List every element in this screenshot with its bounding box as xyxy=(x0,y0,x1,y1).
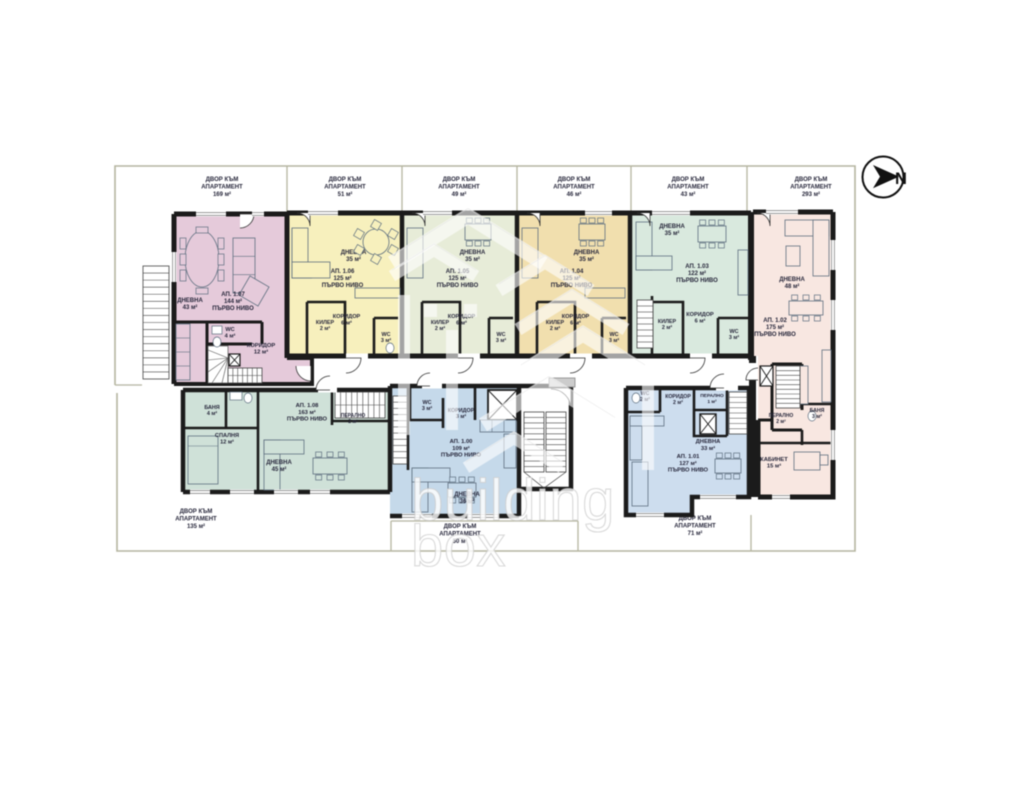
svg-text:12 м²: 12 м² xyxy=(220,438,234,445)
svg-text:КИЛЕР: КИЛЕР xyxy=(431,320,450,326)
svg-text:ДНЕВНА: ДНЕВНА xyxy=(460,250,486,256)
svg-text:АП. 1.07: АП. 1.07 xyxy=(221,292,245,298)
svg-text:33 м²: 33 м² xyxy=(701,445,715,452)
svg-text:2 м²: 2 м² xyxy=(662,325,672,331)
svg-text:ДВОР КЪМ: ДВОР КЪМ xyxy=(180,509,213,515)
svg-text:6 м²: 6 м² xyxy=(341,319,352,326)
svg-text:4 м²: 4 м² xyxy=(207,411,217,417)
svg-text:АПАРТАМЕНТ: АПАРТАМЕНТ xyxy=(790,185,832,191)
svg-text:2 м²: 2 м² xyxy=(320,326,330,332)
svg-text:15 м²: 15 м² xyxy=(767,463,781,470)
svg-text:ДНЕВНА: ДНЕВНА xyxy=(696,439,722,445)
svg-text:ДВОР КЪМ: ДВОР КЪМ xyxy=(329,177,362,183)
svg-text:43 м²: 43 м² xyxy=(183,304,198,311)
svg-text:ДНЕВНА: ДНЕВНА xyxy=(574,250,600,256)
svg-text:1 м²: 1 м² xyxy=(707,399,717,405)
svg-text:N: N xyxy=(895,170,907,188)
svg-text:ПЪРВО НИВО: ПЪРВО НИВО xyxy=(754,332,796,338)
svg-text:АП. 1.01: АП. 1.01 xyxy=(677,454,701,460)
svg-text:3 м²: 3 м² xyxy=(422,406,432,412)
svg-text:4 м²: 4 м² xyxy=(225,332,236,339)
svg-text:169 м²: 169 м² xyxy=(213,191,231,198)
svg-text:46 м²: 46 м² xyxy=(567,191,582,198)
svg-text:3 м²: 3 м² xyxy=(729,335,739,341)
svg-text:35 м²: 35 м² xyxy=(579,256,594,263)
svg-text:293 м²: 293 м² xyxy=(802,191,820,198)
svg-text:box: box xyxy=(411,514,506,579)
svg-text:КОРИДОР: КОРИДОР xyxy=(333,314,361,320)
svg-text:ПЪРВО НИВО: ПЪРВО НИВО xyxy=(287,417,328,423)
svg-text:2 м²: 2 м² xyxy=(348,419,358,425)
svg-text:ДНЕВНА: ДНЕВНА xyxy=(177,298,203,304)
svg-text:12 м²: 12 м² xyxy=(254,349,268,356)
svg-text:144 м²: 144 м² xyxy=(224,298,242,305)
svg-text:АП. 1.02: АП. 1.02 xyxy=(763,318,787,324)
svg-text:БАНЯ: БАНЯ xyxy=(204,405,219,411)
svg-text:6 м²: 6 м² xyxy=(570,319,581,326)
svg-text:ДВОР КЪМ: ДВОР КЪМ xyxy=(206,177,239,183)
svg-text:АПАРТАМЕНТ: АПАРТАМЕНТ xyxy=(553,185,595,191)
svg-text:109 м²: 109 м² xyxy=(452,445,470,452)
svg-text:127 м²: 127 м² xyxy=(679,460,697,467)
svg-text:АПАРТАМЕНТ: АПАРТАМЕНТ xyxy=(324,185,366,191)
svg-text:КОРИДОР: КОРИДОР xyxy=(686,312,714,318)
svg-text:122 м²: 122 м² xyxy=(688,270,706,277)
svg-text:163 м²: 163 м² xyxy=(298,409,316,416)
svg-text:ДНЕВНА: ДНЕВНА xyxy=(266,460,292,466)
svg-text:WC: WC xyxy=(225,327,234,333)
svg-text:WC: WC xyxy=(730,329,739,335)
svg-text:2 м²: 2 м² xyxy=(550,326,560,332)
svg-text:48 м²: 48 м² xyxy=(785,283,800,290)
svg-text:КИЛЕР: КИЛЕР xyxy=(658,319,677,325)
svg-text:СПАЛНЯ: СПАЛНЯ xyxy=(215,433,239,439)
svg-text:35 м²: 35 м² xyxy=(346,256,361,263)
svg-text:ПЪРВО НИВО: ПЪРВО НИВО xyxy=(212,306,254,312)
svg-text:175 м²: 175 м² xyxy=(766,324,784,331)
svg-text:АПАРТАМЕНТ: АПАРТАМЕНТ xyxy=(438,185,480,191)
svg-text:КИЛЕР: КИЛЕР xyxy=(546,320,565,326)
svg-text:6 м²: 6 м² xyxy=(456,319,467,326)
svg-text:49 м²: 49 м² xyxy=(452,191,467,198)
svg-text:2 м²: 2 м² xyxy=(435,326,445,332)
svg-text:35 м²: 35 м² xyxy=(465,256,480,263)
svg-text:ДВОР КЪМ: ДВОР КЪМ xyxy=(672,177,705,183)
svg-text:2 м²: 2 м² xyxy=(673,400,683,406)
svg-text:51 м²: 51 м² xyxy=(338,191,353,198)
svg-text:135 м²: 135 м² xyxy=(187,523,205,530)
svg-text:WC: WC xyxy=(497,332,506,338)
svg-text:КОРИДОР: КОРИДОР xyxy=(562,314,590,320)
svg-text:АП. 1.08: АП. 1.08 xyxy=(296,403,320,409)
svg-text:125 м²: 125 м² xyxy=(333,275,351,282)
svg-text:3 м²: 3 м² xyxy=(812,414,822,420)
svg-text:КАБИНЕТ: КАБИНЕТ xyxy=(760,457,788,463)
svg-text:71 м²: 71 м² xyxy=(688,530,703,537)
svg-text:WC: WC xyxy=(382,332,391,338)
svg-text:WC: WC xyxy=(423,400,432,406)
svg-text:АП. 1.06: АП. 1.06 xyxy=(331,269,355,275)
svg-text:ПЪРВО НИВО: ПЪРВО НИВО xyxy=(437,283,479,289)
svg-text:ДВОР КЪМ: ДВОР КЪМ xyxy=(795,177,828,183)
svg-text:ДНЕВНА: ДНЕВНА xyxy=(779,277,805,283)
svg-text:6 м²: 6 м² xyxy=(695,317,706,324)
svg-text:ДВОР КЪМ: ДВОР КЪМ xyxy=(443,177,476,183)
svg-text:45 м²: 45 м² xyxy=(272,466,287,473)
svg-text:35 м²: 35 м² xyxy=(665,230,680,237)
svg-text:2 м²: 2 м² xyxy=(776,419,786,425)
svg-text:АПАРТАМЕНТ: АПАРТАМЕНТ xyxy=(201,185,243,191)
svg-text:125 м²: 125 м² xyxy=(448,275,466,282)
svg-text:ПЪРВО НИВО: ПЪРВО НИВО xyxy=(668,468,709,474)
svg-text:3 м²: 3 м² xyxy=(496,338,506,344)
svg-text:43 м²: 43 м² xyxy=(681,191,696,198)
svg-text:АПАРТАМЕНТ: АПАРТАМЕНТ xyxy=(175,517,217,523)
svg-text:КИЛЕР: КИЛЕР xyxy=(316,320,335,326)
svg-text:АП. 1.00: АП. 1.00 xyxy=(450,439,473,445)
svg-text:АПАРТАМЕНТ: АПАРТАМЕНТ xyxy=(674,524,716,530)
svg-text:WC: WC xyxy=(610,332,619,338)
svg-text:ДВОР КЪМ: ДВОР КЪМ xyxy=(558,177,591,183)
svg-text:ПЪРВО НИВО: ПЪРВО НИВО xyxy=(676,278,718,284)
svg-text:КОРИДОР: КОРИДОР xyxy=(247,343,276,349)
svg-text:АП. 1.03: АП. 1.03 xyxy=(685,264,709,270)
svg-text:ДНЕВНА: ДНЕВНА xyxy=(659,224,685,230)
svg-text:ПЕРАЛНО: ПЕРАЛНО xyxy=(700,393,724,399)
svg-text:АПАРТАМЕНТ: АПАРТАМЕНТ xyxy=(667,185,709,191)
